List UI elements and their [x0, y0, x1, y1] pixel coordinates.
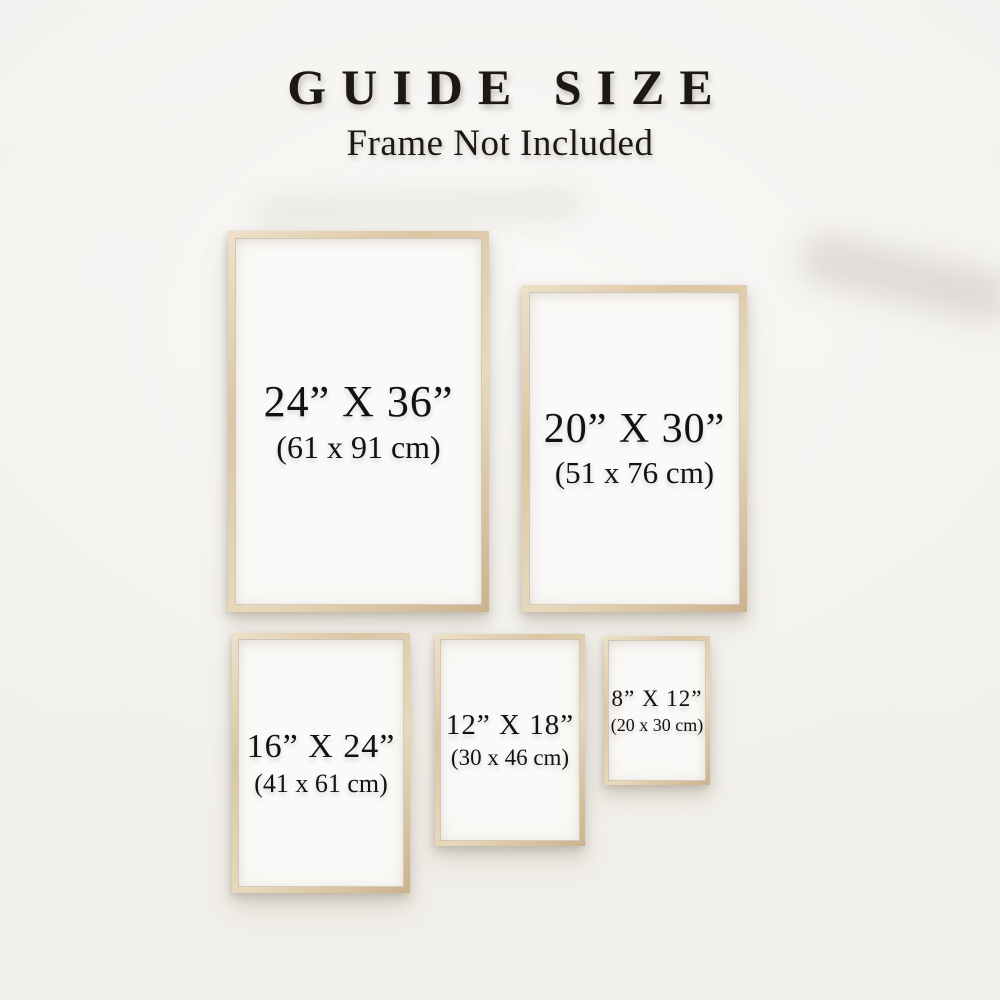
size-label-inches: 24” X 36” — [264, 377, 454, 426]
header: GUIDE SIZE Frame Not Included — [0, 58, 1000, 165]
size-label-cm: (51 x 76 cm) — [555, 456, 714, 491]
size-label-inches: 20” X 30” — [544, 406, 726, 453]
poster-8x12: 8” X 12” (20 x 30 cm) — [608, 640, 706, 781]
poster-24x36: 24” X 36” (61 x 91 cm) — [235, 238, 482, 605]
wall-shadow-top — [255, 190, 586, 228]
size-label-inches: 12” X 18” — [446, 709, 574, 741]
wall-shadow-top-right — [795, 228, 1000, 327]
poster-20x30: 20” X 30” (51 x 76 cm) — [529, 292, 740, 605]
size-label-inches: 8” X 12” — [611, 686, 702, 712]
size-label-inches: 16” X 24” — [247, 728, 396, 766]
size-label-cm: (30 x 46 cm) — [451, 745, 569, 771]
poster-16x24: 16” X 24” (41 x 61 cm) — [238, 639, 404, 887]
poster-12x18: 12” X 18” (30 x 46 cm) — [440, 639, 580, 841]
frame-20x30: 20” X 30” (51 x 76 cm) — [522, 285, 747, 612]
frame-12x18: 12” X 18” (30 x 46 cm) — [435, 634, 585, 846]
frame-16x24: 16” X 24” (41 x 61 cm) — [232, 633, 410, 893]
size-label-cm: (20 x 30 cm) — [611, 715, 703, 735]
size-label-cm: (61 x 91 cm) — [276, 430, 440, 466]
frame-24x36: 24” X 36” (61 x 91 cm) — [228, 231, 489, 612]
page-subtitle: Frame Not Included — [0, 122, 1000, 165]
size-guide-image: GUIDE SIZE Frame Not Included 24” X 36” … — [0, 0, 1000, 1000]
size-label-cm: (41 x 61 cm) — [254, 769, 388, 798]
frame-8x12: 8” X 12” (20 x 30 cm) — [604, 636, 710, 785]
page-title: GUIDE SIZE — [0, 58, 1000, 116]
